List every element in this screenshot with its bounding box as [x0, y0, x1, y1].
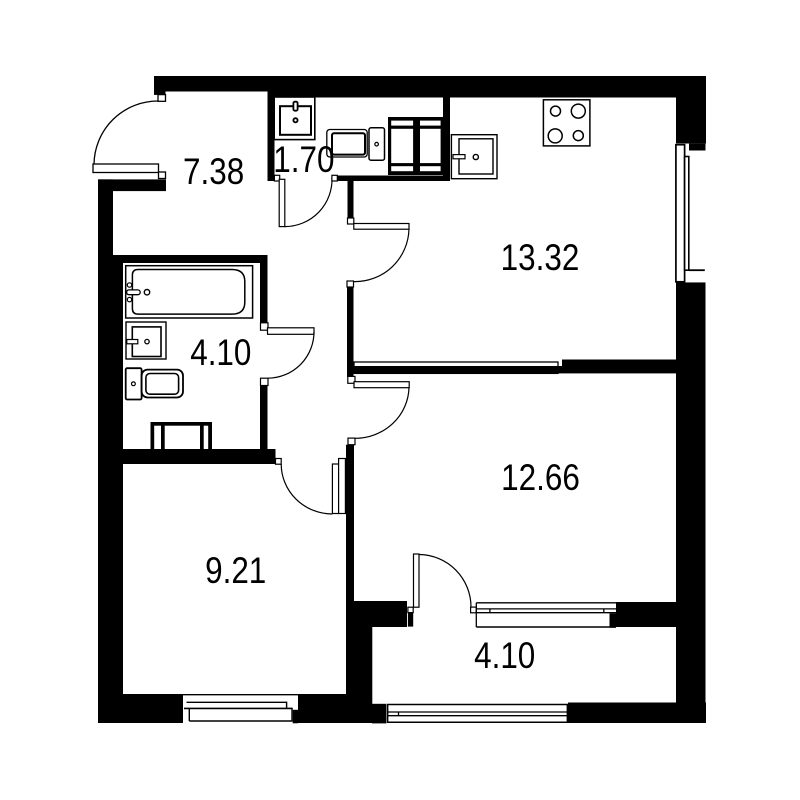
svg-text:12.66: 12.66 — [501, 457, 580, 498]
svg-text:9.21: 9.21 — [205, 550, 266, 591]
svg-text:7.38: 7.38 — [183, 151, 244, 192]
svg-text:4.10: 4.10 — [190, 332, 251, 373]
svg-text:1.70: 1.70 — [273, 140, 334, 181]
svg-text:13.32: 13.32 — [501, 237, 580, 278]
svg-text:4.10: 4.10 — [474, 636, 535, 677]
